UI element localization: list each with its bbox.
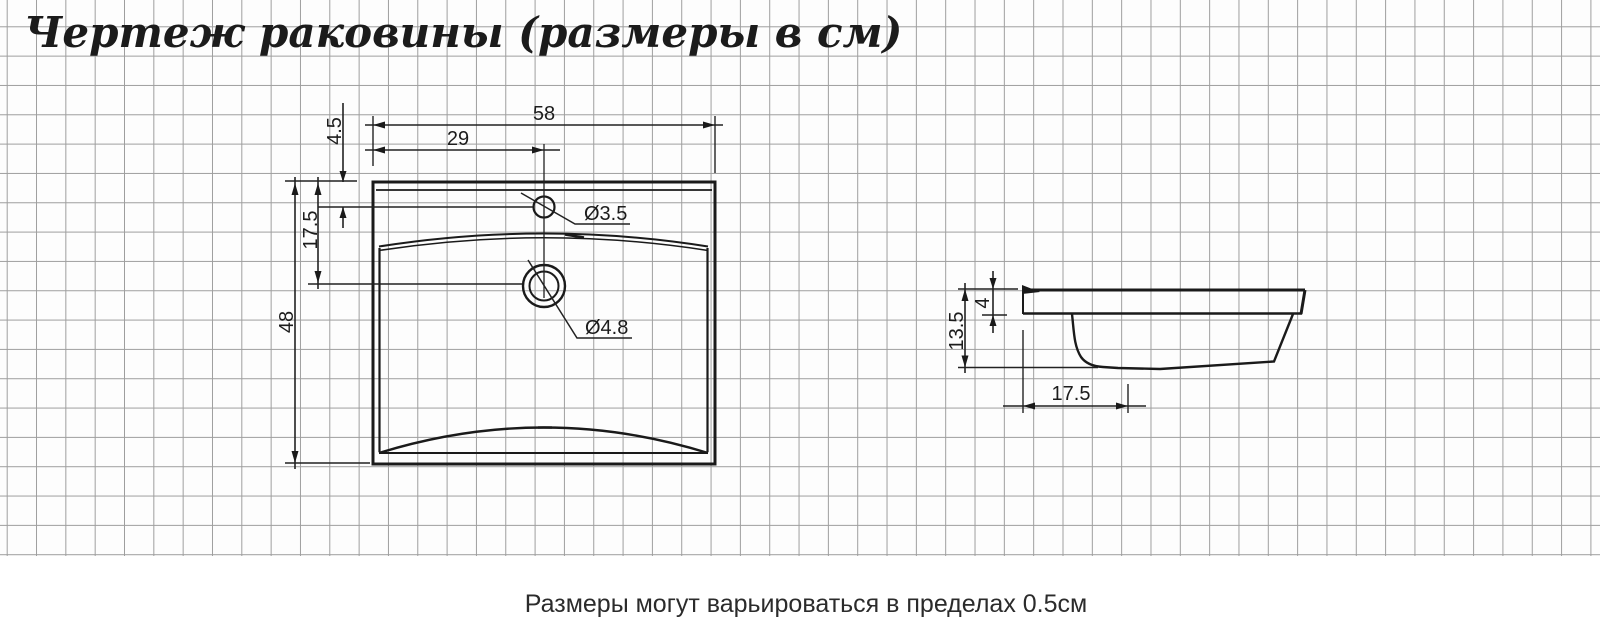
dim-175s-label: 17.5 (1052, 383, 1091, 405)
dim-4-arrow-bottom (990, 315, 997, 326)
dim-175f-arrow-top (315, 183, 322, 195)
dim-45-label: 4.5 (324, 117, 346, 145)
dim-48-arrow-bottom (292, 451, 299, 463)
dim-48-label: 48 (276, 311, 298, 333)
tolerance-note: Размеры могут варьироваться в пределах 0… (0, 590, 1600, 619)
side-bowl-profile (1072, 314, 1293, 369)
dim-29-arrow-right (532, 147, 544, 154)
dim-45-arrow-bottom (340, 207, 347, 218)
sink-technical-drawing: 58 29 4.5 17.5 48 Ø3.5 Ø4.8 (0, 0, 1600, 641)
front-view (373, 144, 715, 464)
front-dimensions: 58 29 4.5 17.5 48 Ø3.5 Ø4.8 (276, 103, 723, 469)
dim-58-arrow-right (703, 122, 715, 129)
side-dimensions: 13.5 4 17.5 (946, 271, 1146, 413)
dim-135-arrow-top (962, 289, 969, 301)
dim-4-arrow-top (990, 278, 997, 289)
dim-135-arrow-bottom (962, 356, 969, 368)
dim-175s-arrow-left (1023, 403, 1035, 410)
dim-175s-arrow-right (1116, 403, 1128, 410)
dim-175f-label: 17.5 (300, 211, 322, 250)
dim-58-label: 58 (533, 103, 555, 125)
dim-135-label: 13.5 (946, 312, 968, 351)
dim-175f-arrow-bottom (315, 271, 322, 283)
dim-29-label: 29 (447, 128, 469, 150)
front-basin-bottom-arc (379, 428, 708, 454)
faucet-hole-label: Ø3.5 (584, 203, 627, 225)
drain-hole-label: Ø4.8 (585, 317, 628, 339)
dim-4-label: 4 (972, 297, 994, 308)
side-rim-right-edge (1301, 290, 1305, 314)
side-view (1022, 285, 1305, 369)
dim-29-arrow-left (373, 147, 385, 154)
dim-58-arrow-left (373, 122, 385, 129)
dim-48-arrow-top (292, 183, 299, 195)
